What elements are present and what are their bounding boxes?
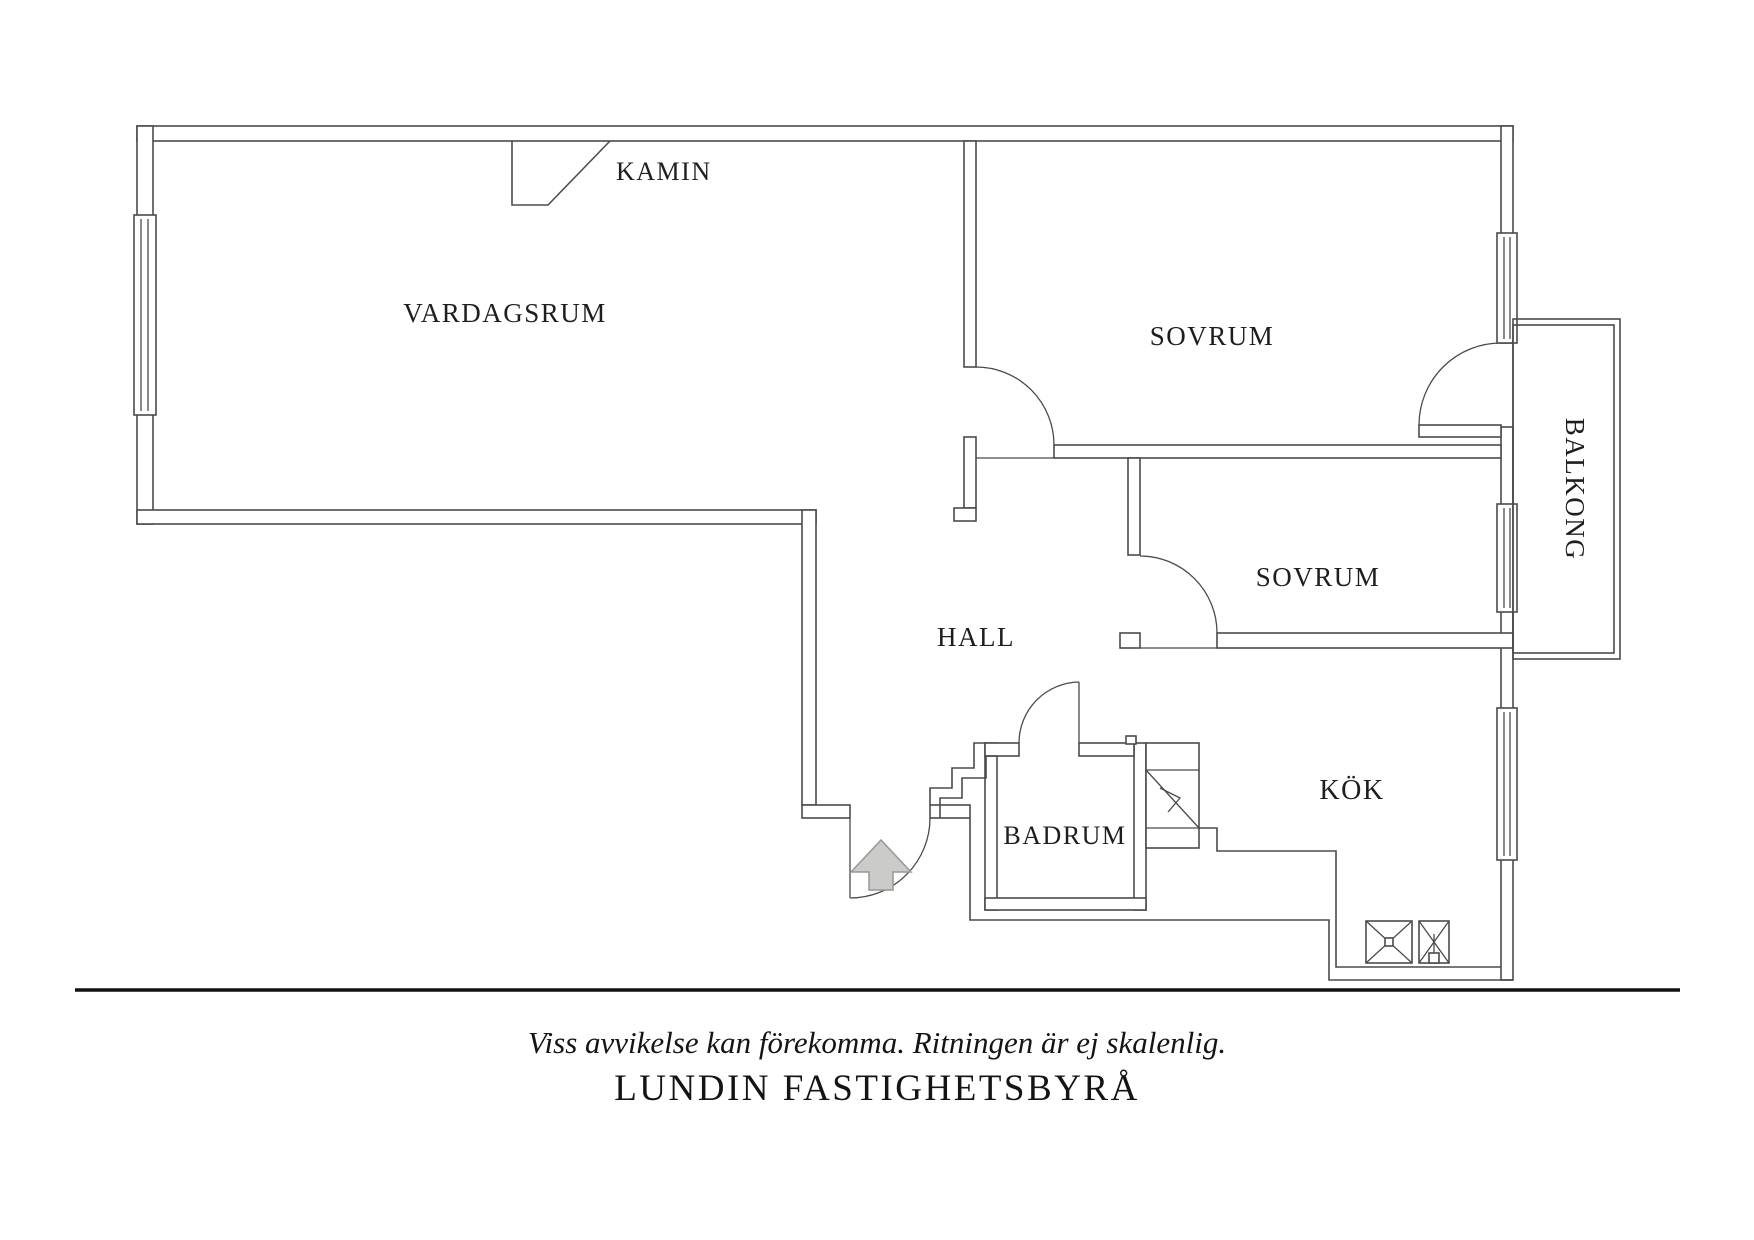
room-label-balkong: BALKONG — [1560, 418, 1590, 561]
wall-stub-foot — [954, 508, 976, 521]
exterior-walls — [137, 126, 1513, 980]
wall-bathroom-top-left — [985, 743, 1019, 756]
door-leaf-balcony — [1419, 425, 1501, 437]
room-label-sovrum-1: SOVRUM — [1150, 321, 1275, 351]
wall-bathroom-right — [1134, 743, 1146, 910]
wall-bathroom-top-right — [1079, 743, 1134, 756]
wall-segment-entry-right — [930, 805, 970, 818]
room-label-sovrum-2: SOVRUM — [1256, 562, 1381, 592]
door-arc-bedroom2 — [1140, 556, 1217, 633]
room-label-hall: HALL — [937, 622, 1015, 652]
wall-partition-hall-bedroom2 — [1128, 458, 1140, 555]
room-label-badrum: BADRUM — [1003, 821, 1126, 850]
kitchen-fixtures — [1366, 921, 1449, 963]
stove-icon — [1366, 921, 1412, 963]
floor-plan: VARDAGSRUM KAMIN SOVRUM SOVRUM HALL BADR… — [0, 0, 1754, 1240]
footer-brand-text: LUNDIN FASTIGHETSBYRÅ — [614, 1068, 1140, 1109]
wall-bedroom2-bottom — [1217, 633, 1513, 648]
door-arc-balcony — [1419, 343, 1501, 425]
window-bedroom1 — [1497, 233, 1517, 343]
door-arc-bathroom — [1019, 682, 1079, 743]
room-label-kok: KÖK — [1319, 775, 1384, 806]
window-bedroom2 — [1497, 504, 1517, 612]
window-livingroom — [134, 215, 156, 415]
wall-bedroom2-bottom-cap — [1120, 633, 1140, 648]
wall-stub-hall — [964, 437, 976, 508]
wall-segment-livingroom-bottom — [137, 510, 816, 524]
wall-bathroom-bottom — [985, 898, 1146, 910]
floor-plan-page: VARDAGSRUM KAMIN SOVRUM SOVRUM HALL BADR… — [0, 0, 1754, 1240]
wall-tick — [1126, 736, 1136, 744]
sink-icon — [1419, 921, 1449, 963]
wall-outline-kitchen-inner — [1199, 828, 1501, 967]
shaft-box — [1146, 743, 1199, 848]
entrance-arrow-icon — [851, 840, 911, 890]
windows — [134, 215, 1517, 860]
wall-segment-entry-left — [802, 805, 850, 818]
footer: Viss avvikelse kan förekomma. Ritningen … — [75, 990, 1680, 1109]
wall-steps-outer — [930, 743, 985, 805]
shaft-symbol — [1146, 743, 1199, 848]
room-label-kamin: KAMIN — [616, 157, 712, 186]
wall-bedroom1-bottom — [1054, 445, 1501, 458]
window-kitchen — [1497, 708, 1517, 860]
wall-segment-hall-left — [802, 510, 816, 805]
wall-partition-livingroom-bedroom1 — [964, 141, 976, 367]
interior-walls — [930, 141, 1513, 910]
wall-segment-top — [137, 126, 1513, 141]
door-arc-bedroom1 — [976, 367, 1054, 445]
footer-disclaimer-text: Viss avvikelse kan förekomma. Ritningen … — [528, 1025, 1226, 1060]
room-label-vardagsrum: VARDAGSRUM — [403, 298, 607, 328]
fireplace-outline — [512, 141, 610, 205]
